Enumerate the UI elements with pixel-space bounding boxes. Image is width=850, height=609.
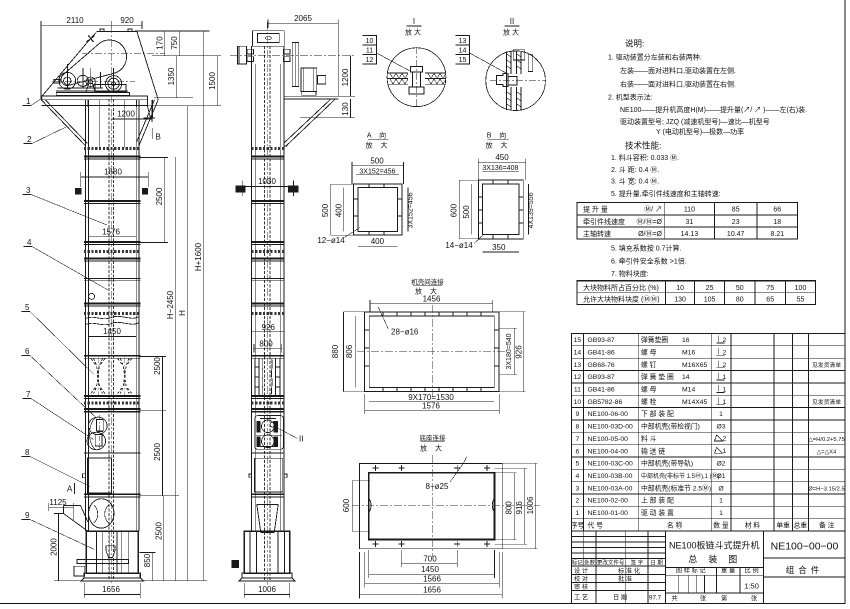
svg-text:大块物料所占百分比 (%): 大块物料所占百分比 (%) (583, 283, 659, 292)
svg-text:料 斗: 料 斗 (641, 434, 657, 443)
svg-text:500: 500 (321, 203, 330, 217)
svg-text:II: II (299, 435, 303, 444)
svg-text:重 量: 重 量 (721, 567, 735, 575)
svg-text:1006: 1006 (258, 585, 276, 594)
svg-text:8: 8 (576, 424, 580, 431)
svg-text:Ⓜ/Ⓜ=Ø: Ⓜ/Ⓜ=Ø (637, 218, 663, 226)
svg-text:材 料: 材 料 (745, 521, 761, 530)
svg-text:55: 55 (797, 297, 805, 304)
svg-text:2000: 2000 (50, 538, 59, 556)
svg-text:H: H (178, 310, 187, 316)
svg-text:2: 2 (27, 135, 32, 144)
svg-text:Ⓜ/ ↗: Ⓜ/ ↗ (644, 206, 662, 214)
svg-text:组合件: 组合件 (786, 565, 824, 575)
svg-text:2500: 2500 (154, 522, 163, 540)
svg-text:GB41-86: GB41-86 (588, 387, 615, 394)
svg-text:1566: 1566 (423, 575, 441, 584)
svg-text:2. 斗 距: 0.4 Ⓜ.: 2. 斗 距: 0.4 Ⓜ. (611, 166, 659, 174)
svg-text:66: 66 (773, 207, 781, 214)
svg-text:10: 10 (676, 285, 684, 292)
svg-text:2110: 2110 (66, 16, 84, 25)
svg-text:M14X45: M14X45 (682, 399, 708, 406)
svg-text:NE100-03C-00: NE100-03C-00 (588, 461, 634, 468)
svg-text:916: 916 (515, 501, 524, 515)
svg-text:400: 400 (334, 203, 343, 217)
svg-text:926: 926 (262, 323, 276, 332)
svg-text:2500: 2500 (153, 357, 162, 375)
svg-text:Ø=H−3.15/2.5: Ø=H−3.15/2.5 (808, 486, 844, 492)
svg-text:放 大: 放 大 (366, 141, 391, 150)
svg-text:允许大块物料块度 (ⓂⓂ): 允许大块物料块度 (ⓂⓂ) (583, 295, 660, 304)
svg-text:5: 5 (25, 303, 30, 312)
svg-text:1350: 1350 (167, 67, 176, 85)
svg-text:B: B (156, 133, 161, 142)
svg-text:上 部 装 配: 上 部 装 配 (641, 496, 674, 505)
svg-text:2500: 2500 (153, 443, 162, 461)
svg-text:工 艺: 工 艺 (574, 594, 588, 602)
svg-text:7: 7 (26, 390, 31, 399)
svg-text:说明:: 说明: (625, 39, 644, 49)
svg-text:M14: M14 (682, 387, 695, 394)
svg-text:2500: 2500 (155, 187, 164, 205)
svg-text:5: 5 (576, 461, 580, 468)
svg-text:1: 1 (719, 498, 723, 505)
svg-text:18: 18 (773, 219, 781, 226)
svg-text:NE100板链斗式提升机: NE100板链斗式提升机 (669, 540, 760, 551)
svg-text:85: 85 (732, 207, 740, 214)
svg-text:105: 105 (704, 297, 716, 304)
svg-text:6: 6 (576, 448, 580, 455)
svg-text:1. 驱动装置分左装和右装两种.: 1. 驱动装置分左装和右装两种. (608, 53, 702, 62)
svg-text:H−2450: H−2450 (166, 290, 175, 319)
svg-text:600: 600 (342, 498, 351, 512)
svg-text:Y (电动机型号)—极数—功率: Y (电动机型号)—极数—功率 (656, 127, 744, 136)
svg-text:GB5782-86: GB5782-86 (588, 399, 623, 406)
svg-text:日 期: 日 期 (613, 594, 627, 602)
svg-text:主轴转速: 主轴转速 (583, 229, 611, 238)
svg-text:NE100-01-00: NE100-01-00 (588, 510, 629, 517)
svg-text:12: 12 (574, 374, 582, 381)
svg-text:1576: 1576 (422, 402, 440, 411)
svg-text:1450: 1450 (103, 327, 121, 336)
svg-text:400: 400 (371, 237, 385, 246)
svg-text:审 核: 审 核 (574, 583, 588, 591)
svg-text:驱动装置型号; JZQ (减速机型号)—速比—机型号: 驱动装置型号; JZQ (减速机型号)—速比—机型号 (620, 117, 770, 126)
svg-text:850: 850 (143, 553, 152, 567)
svg-text:75: 75 (766, 285, 774, 292)
svg-text:2. 机型表示法:: 2. 机型表示法: (608, 93, 653, 102)
svg-text:II: II (510, 17, 514, 26)
svg-text:7. 物料块度:: 7. 物料块度: (611, 269, 649, 278)
svg-text:右装——面对进料口,驱动装置在右侧.: 右装——面对进料口,驱动装置在右侧. (620, 80, 736, 89)
svg-text:1:50: 1:50 (744, 582, 759, 591)
svg-text:28−ø16: 28−ø16 (391, 328, 419, 337)
svg-text:10: 10 (366, 38, 374, 45)
svg-text:日 期: 日 期 (650, 559, 663, 566)
svg-text:螺 钉: 螺 钉 (641, 360, 657, 369)
svg-text:设 计: 设 计 (574, 567, 588, 575)
svg-text:螺 母: 螺 母 (641, 385, 657, 394)
svg-text:11: 11 (574, 387, 581, 394)
svg-text:16: 16 (682, 337, 690, 344)
svg-text:926: 926 (515, 345, 524, 359)
svg-text:A 向: A 向 (367, 131, 389, 140)
svg-text:见发货清单: 见发货清单 (812, 361, 841, 369)
svg-text:3: 3 (26, 186, 31, 195)
svg-text:M16X65: M16X65 (682, 362, 708, 369)
svg-text:NE100-03B-00: NE100-03B-00 (588, 473, 633, 480)
svg-text:1450: 1450 (421, 565, 439, 574)
svg-text:驱 动 装 置: 驱 动 装 置 (641, 508, 674, 517)
svg-text:50: 50 (736, 285, 744, 292)
svg-text:张: 张 (700, 595, 707, 603)
svg-text:放 大: 放 大 (420, 444, 445, 453)
svg-text:1030: 1030 (258, 177, 276, 186)
svg-text:9: 9 (576, 411, 580, 418)
svg-text:14: 14 (574, 350, 582, 357)
svg-text:14−ø14: 14−ø14 (445, 241, 473, 250)
svg-text:中部机壳(带检视门): 中部机壳(带检视门) (641, 422, 700, 431)
svg-text:1125: 1125 (49, 498, 67, 507)
svg-text:7: 7 (576, 436, 580, 443)
svg-text:4: 4 (576, 473, 580, 480)
svg-text:Ø2: Ø2 (716, 461, 725, 468)
svg-text:12−ø14: 12−ø14 (317, 236, 345, 245)
svg-text:校 对: 校 对 (574, 575, 588, 583)
svg-text:14: 14 (459, 48, 467, 55)
svg-text:M16: M16 (682, 350, 695, 357)
svg-text:9X170=1530: 9X170=1530 (408, 393, 454, 402)
svg-text:更改文件号: 更改文件号 (597, 558, 625, 566)
svg-text:10: 10 (574, 399, 582, 406)
svg-text:单重: 单重 (776, 521, 790, 530)
svg-text:技术性能:: 技术性能: (625, 141, 661, 151)
svg-text:920: 920 (120, 16, 134, 25)
svg-text:3X180=540: 3X180=540 (506, 333, 513, 369)
svg-text:750: 750 (170, 36, 179, 50)
svg-text:700: 700 (423, 554, 437, 563)
svg-text:4X139=556: 4X139=556 (528, 192, 535, 228)
svg-text:1006: 1006 (526, 496, 535, 514)
svg-text:比 例: 比 例 (745, 567, 759, 575)
svg-text:A: A (67, 485, 73, 494)
svg-text:螺 栓: 螺 栓 (641, 397, 657, 406)
svg-text:中部机壳(非标节 1.5Ⓜ),1 (Ⓜ): 中部机壳(非标节 1.5Ⓜ),1 (Ⓜ) (641, 472, 720, 480)
svg-text:5. 填充系数按 0.7计算.: 5. 填充系数按 0.7计算. (611, 244, 681, 253)
svg-text:第: 第 (721, 595, 727, 603)
svg-text:1576: 1576 (102, 227, 120, 236)
svg-text:5. 提升量,牵引件线速度和主轴转速:: 5. 提升量,牵引件线速度和主轴转速: (611, 189, 721, 198)
svg-text:3: 3 (576, 485, 580, 492)
svg-text:97.7: 97.7 (649, 595, 662, 602)
svg-text:2: 2 (723, 350, 727, 357)
svg-text:1200: 1200 (117, 109, 135, 118)
svg-text:NE100-03D-00: NE100-03D-00 (588, 424, 634, 431)
svg-text:标记: 标记 (572, 558, 584, 566)
svg-text:3. 斗 宽: 0.4 Ⓜ.: 3. 斗 宽: 0.4 Ⓜ. (611, 177, 659, 186)
svg-text:8.21: 8.21 (770, 231, 784, 238)
svg-text:1: 1 (723, 399, 727, 406)
svg-text:序号: 序号 (571, 521, 585, 530)
svg-text:1500: 1500 (208, 72, 217, 90)
svg-text:1: 1 (719, 510, 723, 517)
svg-text:见发货清单: 见发货清单 (812, 398, 841, 406)
svg-text:130: 130 (341, 102, 350, 116)
svg-text:880: 880 (331, 344, 340, 358)
svg-text:I: I (413, 17, 415, 26)
svg-text:8: 8 (25, 448, 30, 457)
svg-text:△=H/0.2+5.75: △=H/0.2+5.75 (808, 437, 844, 443)
svg-text:13: 13 (574, 362, 582, 369)
svg-text:放 大: 放 大 (486, 141, 511, 150)
svg-text:放大: 放大 (405, 28, 423, 37)
svg-text:GB93-87: GB93-87 (588, 337, 615, 344)
svg-text:9: 9 (25, 511, 30, 520)
svg-text:Ø3: Ø3 (716, 424, 725, 431)
svg-text:1680: 1680 (104, 168, 122, 177)
svg-text:螺 母: 螺 母 (641, 348, 657, 357)
svg-text:提 升 量: 提 升 量 (583, 205, 608, 214)
svg-text:23: 23 (732, 219, 740, 226)
svg-text:机壳间连接: 机壳间连接 (411, 277, 444, 286)
svg-text:2: 2 (576, 498, 580, 505)
svg-text:600: 600 (450, 203, 459, 217)
svg-text:31: 31 (686, 219, 694, 226)
svg-text:总重: 总重 (794, 521, 808, 530)
svg-text:张: 张 (751, 595, 758, 603)
svg-text:输 送 链: 输 送 链 (641, 446, 665, 455)
svg-text:110: 110 (684, 207, 695, 214)
svg-text:备 注: 备 注 (819, 521, 835, 530)
svg-text:3X152=456: 3X152=456 (408, 192, 415, 228)
svg-text:15: 15 (574, 337, 582, 344)
svg-text:Ø: Ø (718, 485, 724, 492)
svg-text:2: 2 (723, 337, 727, 344)
svg-text:1: 1 (723, 448, 727, 455)
svg-text:弹簧垫圈: 弹簧垫圈 (641, 335, 668, 344)
svg-text:4: 4 (27, 238, 32, 247)
svg-text:1: 1 (26, 97, 31, 106)
svg-text:Ø/Ⓜ=Ø: Ø/Ⓜ=Ø (638, 230, 662, 238)
svg-text:2: 2 (723, 435, 727, 442)
svg-text:1656: 1656 (102, 585, 120, 594)
svg-text:B 向: B 向 (487, 131, 510, 140)
svg-text:500: 500 (462, 205, 471, 219)
svg-text:2: 2 (723, 362, 727, 369)
svg-text:1: 1 (719, 411, 723, 418)
svg-text:中部机壳(带导轨): 中部机壳(带导轨) (641, 459, 693, 468)
svg-text:放大: 放大 (503, 28, 521, 37)
svg-text:1656: 1656 (423, 585, 441, 594)
svg-text:标 准 化: 标 准 化 (618, 567, 640, 575)
svg-text:14: 14 (682, 374, 690, 381)
svg-text:25: 25 (706, 285, 714, 292)
svg-text:800: 800 (259, 340, 273, 349)
svg-text:共: 共 (672, 595, 678, 603)
svg-text:3X136=408: 3X136=408 (482, 165, 518, 172)
svg-text:NE100-06-00: NE100-06-00 (588, 411, 629, 418)
svg-text:100: 100 (795, 285, 807, 292)
svg-text:14.13: 14.13 (681, 231, 699, 238)
svg-text:350: 350 (492, 243, 506, 252)
svg-text:H+1600: H+1600 (194, 242, 203, 271)
svg-text:11: 11 (366, 48, 373, 55)
svg-text:450: 450 (495, 153, 509, 162)
svg-text:12: 12 (366, 57, 374, 64)
svg-text:1: 1 (723, 374, 727, 381)
svg-text:2065: 2065 (294, 14, 312, 23)
svg-text:170: 170 (155, 36, 164, 50)
svg-text:10.47: 10.47 (727, 231, 745, 238)
svg-text:80: 80 (736, 297, 744, 304)
svg-text:底座连接: 底座连接 (420, 433, 447, 442)
svg-text:代 号: 代 号 (588, 521, 604, 530)
svg-text:中部机壳(标准节 2.5Ⓜ): 中部机壳(标准节 2.5Ⓜ) (641, 483, 711, 492)
svg-text:左装——面对进料口,驱动装置在左侧.: 左装——面对进料口,驱动装置在左侧. (620, 66, 736, 75)
svg-text:处数: 处数 (584, 558, 596, 566)
svg-text:500: 500 (370, 156, 384, 165)
svg-text:GB93-87: GB93-87 (588, 374, 615, 381)
svg-text:NE100-04-00: NE100-04-00 (588, 448, 629, 455)
svg-text:806: 806 (345, 344, 354, 358)
svg-text:△=△X4: △=△X4 (817, 449, 837, 455)
svg-text:1: 1 (723, 387, 727, 394)
svg-text:GB68-76: GB68-76 (588, 362, 615, 369)
svg-text:1: 1 (576, 510, 580, 517)
svg-text:65: 65 (766, 297, 774, 304)
svg-text:下 部 装 配: 下 部 装 配 (641, 409, 674, 418)
svg-text:弹 簧 垫 圈: 弹 簧 垫 圈 (641, 372, 674, 381)
svg-text:GB41-86: GB41-86 (588, 350, 615, 357)
svg-text:15: 15 (459, 57, 467, 64)
svg-text:1456: 1456 (423, 294, 441, 303)
svg-text:8−ø25: 8−ø25 (426, 482, 449, 491)
svg-text:NE100-05-00: NE100-05-00 (588, 436, 629, 443)
svg-text:6: 6 (25, 347, 30, 356)
svg-text:名 称: 名 称 (667, 521, 683, 530)
svg-text:3X152=456: 3X152=456 (359, 168, 395, 175)
svg-text:签 字: 签 字 (631, 558, 644, 566)
svg-text:130: 130 (674, 297, 686, 304)
svg-text:图 样 标 记: 图 样 标 记 (676, 567, 706, 575)
svg-text:NE100-03A-00: NE100-03A-00 (588, 485, 633, 492)
svg-text:6. 牵引件安全系数 >1倍.: 6. 牵引件安全系数 >1倍. (611, 257, 687, 266)
svg-text:1. 料斗容积: 0.033 Ⓜ.: 1. 料斗容积: 0.033 Ⓜ. (611, 153, 679, 162)
svg-text:13: 13 (459, 38, 467, 45)
svg-text:Ø1: Ø1 (716, 473, 725, 480)
svg-text:总装图: 总装图 (688, 554, 748, 565)
svg-text:数 量: 数 量 (713, 521, 729, 530)
svg-text:NE100-02-00: NE100-02-00 (588, 498, 629, 505)
svg-text:NE100——提升机高度H(M)——提升量(↗/ ↗ )—: NE100——提升机高度H(M)——提升量(↗/ ↗ )——左(右)装. (620, 105, 807, 114)
svg-text:800: 800 (505, 501, 514, 515)
svg-text:批 准: 批 准 (618, 575, 632, 583)
svg-text:牵引件线速度: 牵引件线速度 (583, 217, 625, 226)
svg-text:1200: 1200 (341, 68, 350, 86)
svg-text:NE100−00−00: NE100−00−00 (771, 541, 839, 553)
